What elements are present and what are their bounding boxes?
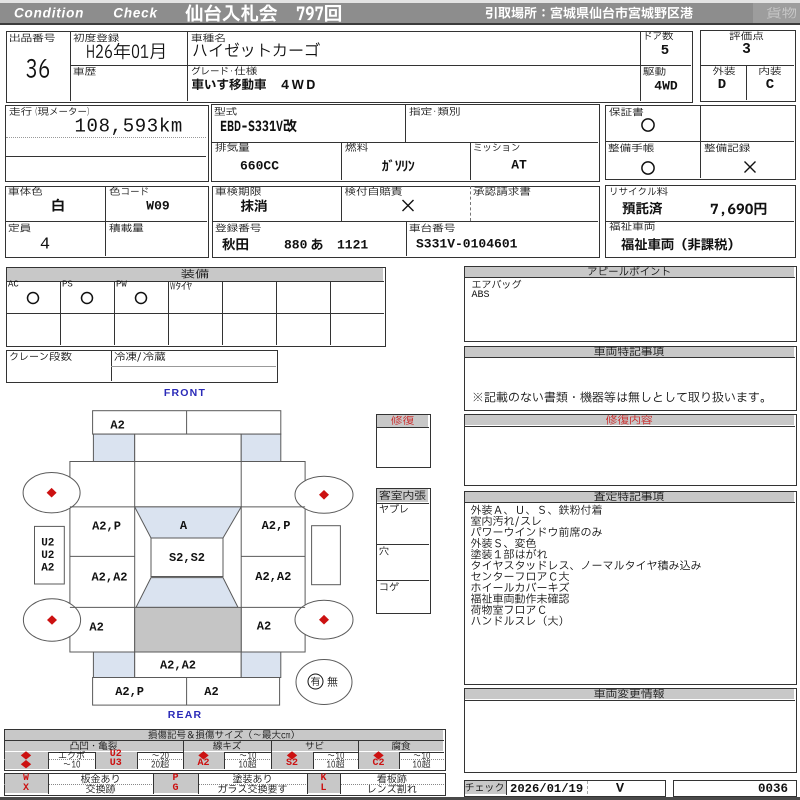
svg-text:S2,S2: S2,S2 bbox=[169, 551, 205, 565]
svg-text:A2,A2: A2,A2 bbox=[255, 570, 291, 584]
svg-text:A2: A2 bbox=[257, 620, 271, 634]
svg-text:A2,P: A2,P bbox=[92, 520, 121, 534]
svg-text:A2: A2 bbox=[110, 419, 124, 433]
svg-text:A2: A2 bbox=[41, 563, 54, 575]
svg-text:A2: A2 bbox=[204, 685, 218, 699]
svg-text:A2,P: A2,P bbox=[262, 519, 291, 533]
svg-text:A2,P: A2,P bbox=[115, 685, 144, 699]
svg-text:A2: A2 bbox=[89, 621, 103, 635]
svg-text:U2: U2 bbox=[41, 538, 54, 550]
svg-text:A2,A2: A2,A2 bbox=[91, 571, 127, 585]
svg-text:U2: U2 bbox=[41, 550, 54, 562]
svg-text:A2,A2: A2,A2 bbox=[160, 659, 196, 673]
svg-text:A: A bbox=[180, 519, 188, 533]
